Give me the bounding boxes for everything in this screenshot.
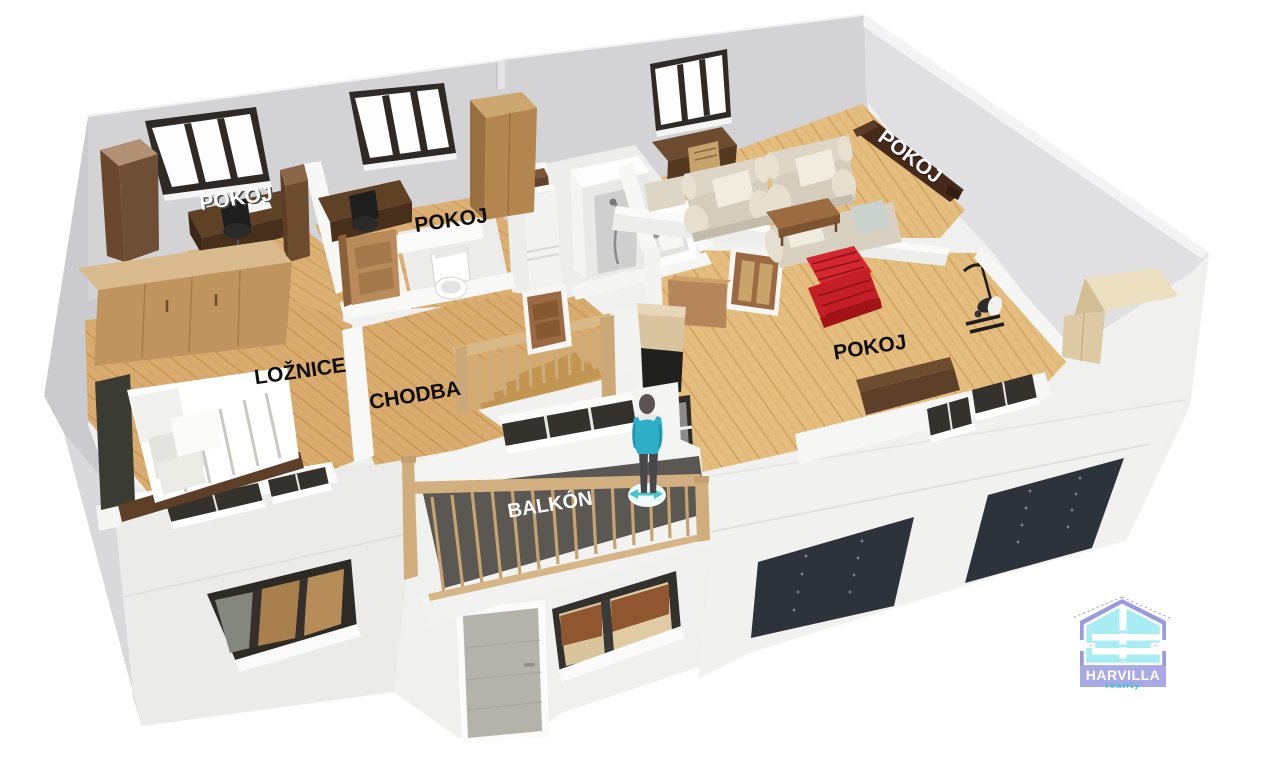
svg-text:reality: reality	[1105, 680, 1141, 690]
